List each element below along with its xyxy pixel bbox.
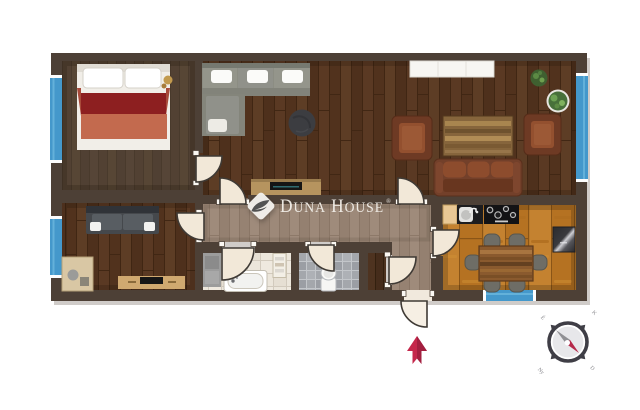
svg-text:DUNA HOUSE: DUNA HOUSE [280,196,384,217]
svg-text:Ny: Ny [536,367,545,376]
svg-text:D: D [588,365,595,372]
svg-text:K: K [590,310,597,317]
svg-text:®: ® [386,198,391,205]
svg-text:É: É [539,313,547,321]
